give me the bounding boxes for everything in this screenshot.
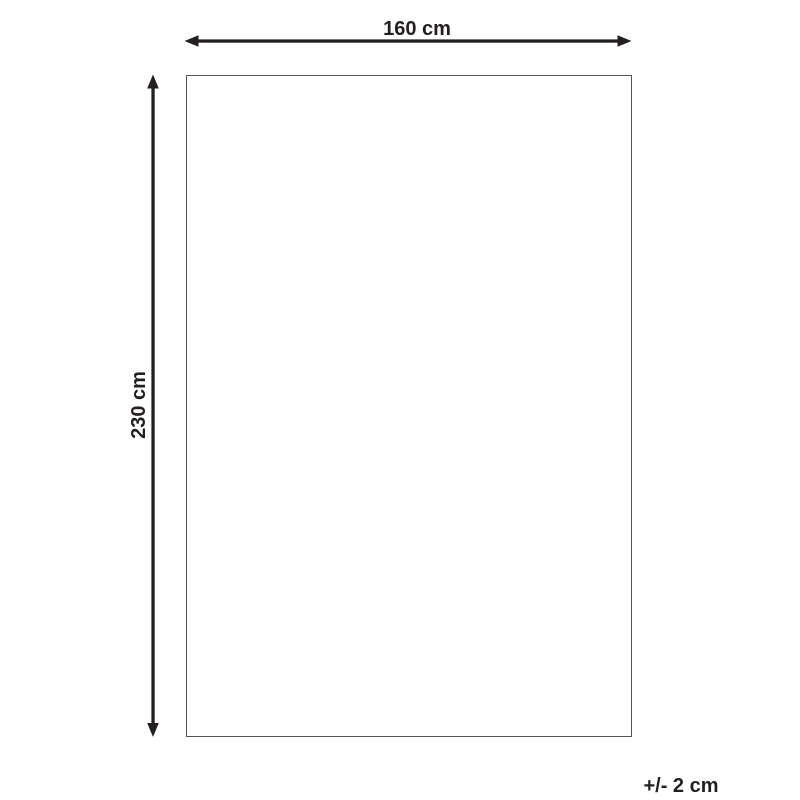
svg-text:+/- 2 cm: +/- 2 cm [643, 775, 718, 797]
svg-text:230 cm: 230 cm [128, 371, 150, 439]
svg-text:160 cm: 160 cm [383, 18, 451, 40]
